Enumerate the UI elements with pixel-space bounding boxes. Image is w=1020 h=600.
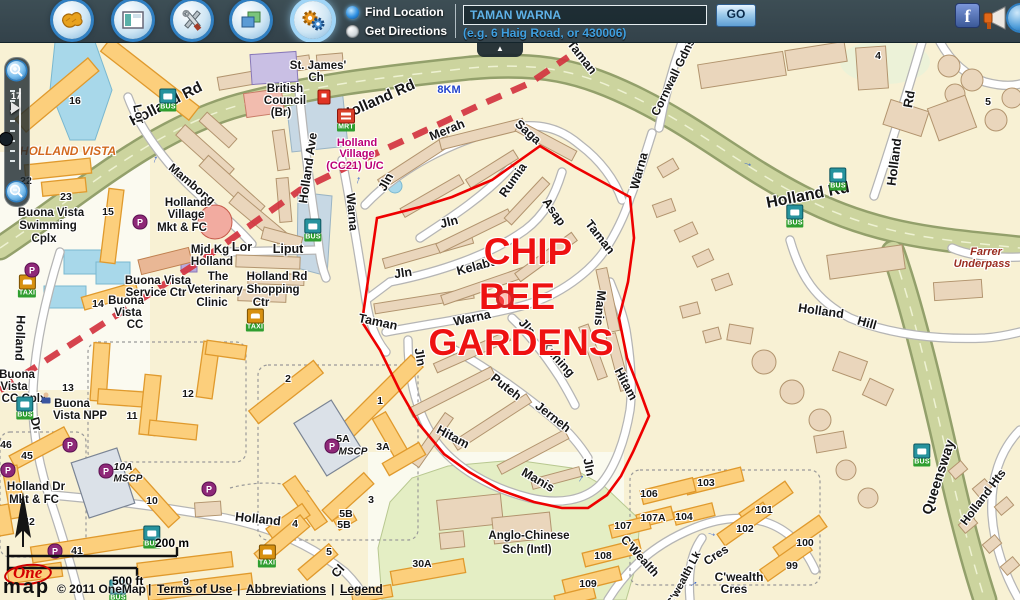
find-location-label: Find Location — [365, 5, 444, 19]
toolbar-collapse-tab[interactable]: ▲ — [477, 42, 523, 57]
window-icon — [122, 11, 144, 29]
scale-metric-label: 200 m — [155, 536, 189, 550]
abbreviations-link[interactable]: Abbreviations — [246, 582, 326, 596]
map-icon — [60, 9, 84, 31]
basemap-button[interactable] — [53, 1, 91, 39]
zoom-control: 17 — [4, 57, 30, 207]
tools-button[interactable] — [173, 1, 211, 39]
search-hint: (e.g. 6 Haig Road, or 430006) — [463, 26, 626, 40]
map-canvas[interactable] — [0, 0, 1020, 600]
get-directions-label: Get Directions — [365, 24, 447, 38]
find-location-radio[interactable] — [346, 6, 359, 19]
search-input[interactable] — [463, 5, 707, 25]
tools-icon — [181, 9, 203, 31]
zoom-out-button[interactable] — [7, 182, 26, 201]
zoom-in-button[interactable] — [7, 61, 26, 80]
top-toolbar: Find Location Get Directions GO (e.g. 6 … — [0, 0, 1020, 43]
footer-separator: | — [237, 582, 240, 596]
toolbar-separator — [455, 4, 456, 38]
megaphone-icon[interactable] — [981, 6, 1009, 32]
copyright-text: © 2011 OneMap — [57, 582, 146, 596]
get-directions-radio[interactable] — [346, 25, 359, 38]
go-button[interactable]: GO — [716, 4, 756, 27]
logo-map: map — [3, 576, 50, 599]
gears-icon — [300, 8, 326, 32]
settings-button[interactable] — [294, 1, 332, 39]
footer-separator: | — [148, 582, 151, 596]
footer-separator: | — [331, 582, 334, 596]
zoom-slider-handle[interactable] — [11, 102, 20, 114]
north-arrow — [12, 490, 34, 550]
facebook-icon[interactable]: f — [955, 3, 980, 28]
layers-button[interactable] — [232, 1, 270, 39]
panel-collapse-knob[interactable] — [0, 132, 13, 146]
onemap-app: Holland RdHolland RdHolland RdHollandRdC… — [0, 0, 1020, 600]
layers-icon — [240, 10, 262, 30]
zoom-level-value: 17 — [5, 91, 27, 101]
terms-link[interactable]: Terms of Use — [157, 582, 232, 596]
zoom-out-icon — [7, 182, 26, 201]
partial-round-button[interactable] — [1008, 5, 1020, 31]
onemap-logo: One map — [3, 566, 59, 600]
legend-link[interactable]: Legend — [340, 582, 383, 596]
zoom-in-icon — [7, 61, 26, 80]
overview-button[interactable] — [114, 1, 152, 39]
